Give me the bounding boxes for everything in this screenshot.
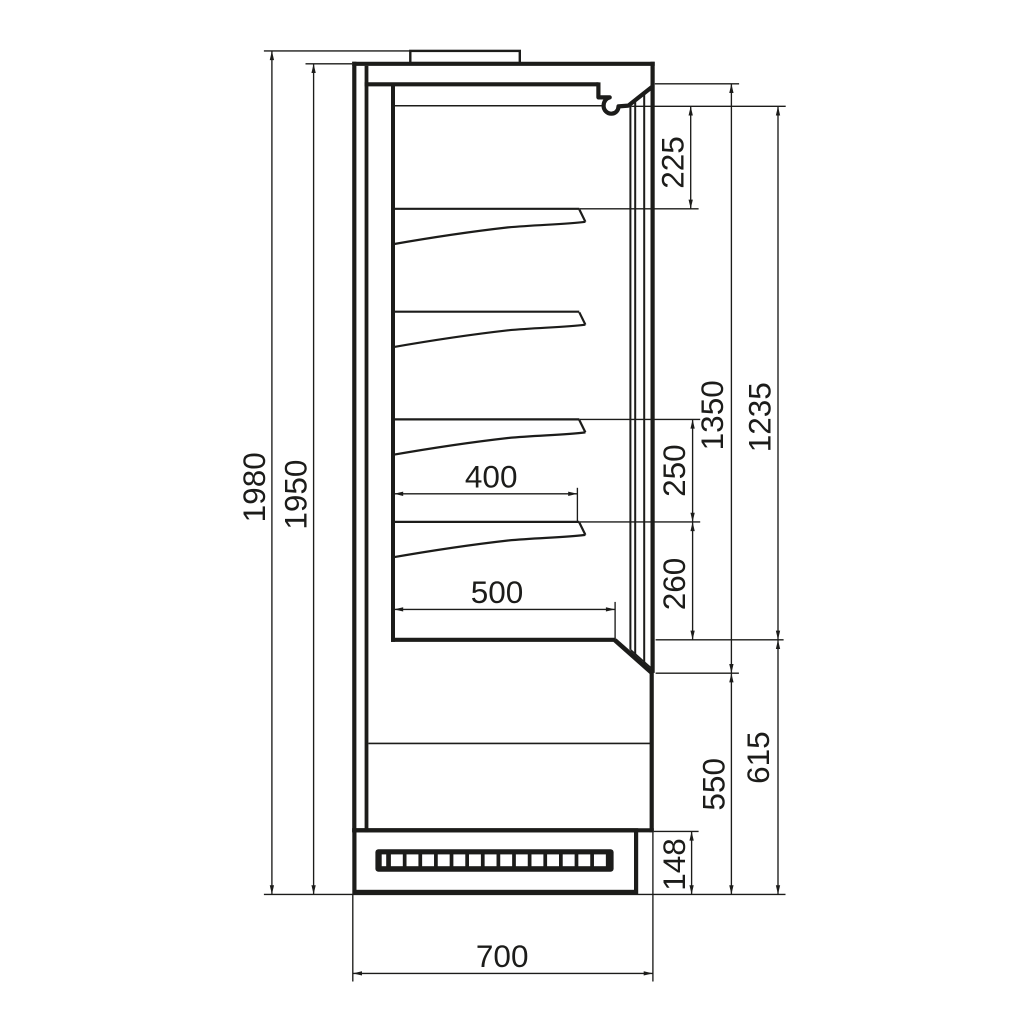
- svg-text:400: 400: [465, 459, 518, 495]
- svg-text:550: 550: [696, 758, 732, 811]
- svg-text:700: 700: [476, 938, 529, 974]
- svg-text:1350: 1350: [694, 380, 730, 450]
- svg-text:225: 225: [654, 136, 690, 189]
- svg-text:1980: 1980: [236, 452, 272, 522]
- svg-text:1235: 1235: [742, 382, 778, 452]
- svg-text:250: 250: [656, 444, 692, 497]
- svg-text:260: 260: [656, 558, 692, 611]
- svg-text:1950: 1950: [277, 460, 313, 530]
- svg-text:500: 500: [471, 574, 524, 610]
- svg-text:148: 148: [656, 838, 692, 891]
- svg-text:615: 615: [740, 731, 776, 784]
